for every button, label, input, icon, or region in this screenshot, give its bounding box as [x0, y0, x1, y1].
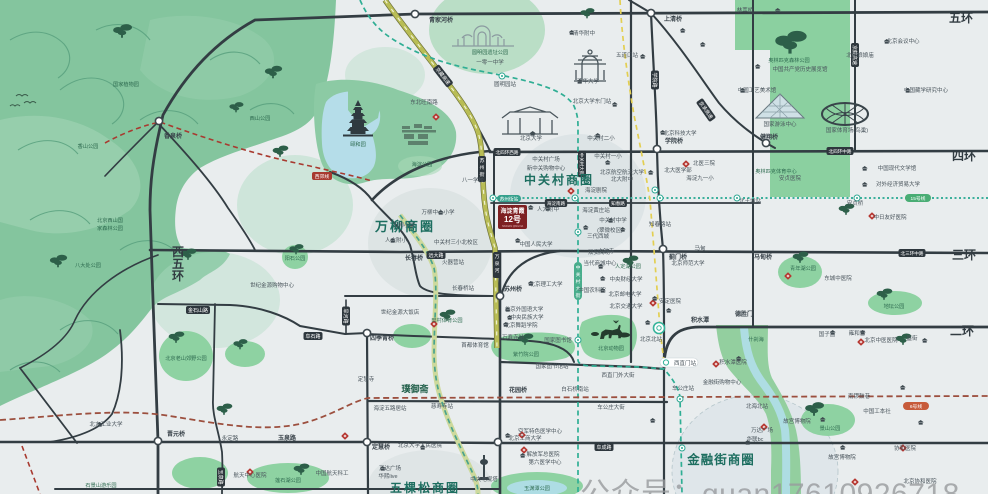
svg-text:苏州街站: 苏州街站: [500, 195, 519, 202]
svg-text:四季青桥: 四季青桥: [370, 334, 395, 342]
svg-text:中央民族大学: 中央民族大学: [510, 313, 544, 321]
svg-text:积水潭医院: 积水潭医院: [719, 358, 747, 366]
svg-text:阜石路: 阜石路: [305, 333, 320, 340]
svg-text:北三环中路: 北三环中路: [901, 250, 924, 257]
svg-text:西直门外大街: 西直门外大街: [601, 371, 635, 379]
svg-text:远大路: 远大路: [428, 252, 443, 259]
svg-text:八大处公园: 八大处公园: [75, 261, 101, 269]
svg-text:北方工业大学: 北方工业大学: [89, 420, 123, 428]
svg-text:北四环西路: 北四环西路: [496, 149, 519, 156]
svg-text:万寿寺站: 万寿寺站: [502, 333, 525, 341]
svg-text:紫竹院公园: 紫竹院公园: [513, 350, 539, 358]
svg-text:长春桥站: 长春桥站: [452, 284, 475, 292]
svg-text:泉: 泉: [495, 260, 500, 267]
svg-text:清华附中: 清华附中: [573, 29, 595, 37]
svg-text:三代西城: 三代西城: [587, 232, 610, 240]
svg-text:阜成路: 阜成路: [596, 444, 611, 451]
svg-text:北京交通大学: 北京交通大学: [609, 302, 643, 310]
svg-text:海淀九一小: 海淀九一小: [686, 174, 714, 182]
svg-text:什刹海: 什刹海: [748, 335, 764, 343]
svg-text:五环: 五环: [949, 11, 973, 25]
svg-text:北京理工大学: 北京理工大学: [529, 280, 563, 288]
svg-text:学院路: 学院路: [651, 72, 658, 87]
svg-text:北京工商大学: 北京工商大学: [508, 434, 542, 442]
svg-text:金石山路: 金石山路: [188, 307, 208, 314]
svg-text:颐和园: 颐和园: [350, 140, 366, 148]
svg-text:中关村一小: 中关村一小: [594, 152, 622, 160]
svg-text:协和医院: 协和医院: [894, 444, 917, 452]
svg-text:北京北站: 北京北站: [640, 335, 663, 343]
svg-text:三环: 三环: [952, 248, 976, 262]
svg-text:金融街购物中心: 金融街购物中心: [703, 378, 742, 386]
svg-text:海淀黄庄站: 海淀黄庄站: [582, 206, 610, 214]
svg-text:金融街商圈: 金融街商圈: [686, 452, 755, 467]
svg-text:河: 河: [495, 267, 500, 274]
svg-text:蓟门桥: 蓟门桥: [668, 253, 688, 261]
svg-text:林萃桥: 林萃桥: [737, 6, 754, 14]
svg-text:村: 村: [576, 278, 581, 285]
svg-text:万达广场: 万达广场: [751, 426, 774, 434]
svg-text:大钟寺: 大钟寺: [598, 247, 615, 255]
svg-text:北大医学部: 北大医学部: [664, 166, 692, 174]
svg-text:国家游泳中心: 国家游泳中心: [763, 120, 797, 128]
svg-text:故宫博物院: 故宫博物院: [783, 417, 811, 425]
svg-text:北京大学东门站: 北京大学东门站: [573, 97, 612, 105]
svg-text:清华大学: 清华大学: [577, 77, 600, 85]
svg-text:莲石湖公园: 莲石湖公园: [275, 476, 301, 484]
svg-text:南锣鼓巷: 南锣鼓巷: [848, 392, 871, 400]
svg-text:新中关购物中心: 新中关购物中心: [527, 164, 566, 172]
svg-text:上清桥: 上清桥: [664, 15, 683, 23]
svg-text:HAIDIAN QINGXIA: HAIDIAN QINGXIA: [502, 225, 524, 228]
svg-text:石景山游乐园: 石景山游乐园: [85, 481, 116, 489]
svg-text:马甸桥: 马甸桥: [754, 253, 773, 261]
svg-text:6号线: 6号线: [910, 403, 922, 410]
svg-text:白石桥南站: 白石桥南站: [561, 385, 589, 393]
svg-text:东城中医院: 东城中医院: [824, 274, 852, 282]
svg-text:北京外国语大学: 北京外国语大学: [505, 305, 544, 313]
svg-text:玉泉路: 玉泉路: [217, 469, 224, 484]
svg-text:璞御斋: 璞御斋: [401, 383, 429, 394]
svg-text:马甸: 马甸: [694, 244, 706, 252]
svg-text:对外经济贸易大学: 对外经济贸易大学: [876, 180, 921, 188]
svg-text:海淀公园: 海淀公园: [412, 160, 433, 168]
svg-text:安贞医院: 安贞医院: [779, 174, 802, 182]
svg-text:国家图书馆: 国家图书馆: [544, 336, 572, 344]
svg-text:中央电视塔: 中央电视塔: [470, 475, 498, 483]
svg-text:首都体育馆: 首都体育馆: [461, 341, 489, 349]
svg-text:北京大学: 北京大学: [520, 134, 543, 142]
svg-text:当代商城中心: 当代商城中心: [583, 259, 617, 267]
svg-text:花园桥: 花园桥: [509, 386, 528, 394]
svg-text:北海北站: 北海北站: [746, 402, 769, 410]
svg-text:公众号：guan17610926718: 公众号：guan17610926718: [580, 478, 960, 494]
svg-text:定慧寺: 定慧寺: [358, 375, 375, 383]
svg-text:积水潭: 积水潭: [691, 316, 709, 324]
svg-text:家森林公园: 家森林公园: [97, 224, 123, 232]
svg-text:德胜门: 德胜门: [734, 310, 753, 318]
svg-text:火器营站: 火器营站: [442, 258, 465, 266]
svg-text:青年湖公园: 青年湖公园: [790, 264, 816, 272]
svg-text:二环: 二环: [950, 324, 974, 338]
svg-text:奥林匹克体育中心: 奥林匹克体育中心: [755, 167, 797, 175]
svg-text:人大附中: 人大附中: [537, 205, 559, 213]
svg-text:北京老山郊野公园: 北京老山郊野公园: [165, 354, 207, 362]
svg-text:中国藏学研究中心: 中国藏学研究中心: [904, 86, 949, 94]
svg-text:中央财经大学: 中央财经大学: [609, 275, 643, 283]
svg-text:海淀五路居站: 海淀五路居站: [373, 404, 407, 412]
svg-text:五棵松商圈: 五棵松商圈: [390, 480, 460, 494]
svg-text:中关村三小北校区: 中关村三小北校区: [434, 238, 479, 246]
svg-text:华熙live: 华熙live: [378, 472, 397, 480]
svg-text:定慧桥: 定慧桥: [371, 443, 391, 451]
svg-text:中国工艺美术馆: 中国工艺美术馆: [738, 86, 777, 94]
svg-text:知春路: 知春路: [611, 200, 625, 207]
svg-text:北京科技大学: 北京科技大学: [663, 129, 697, 137]
svg-text:国家植物园: 国家植物园: [113, 80, 139, 88]
svg-text:簋街: 簋街: [906, 334, 918, 342]
svg-text:万达广场: 万达广场: [379, 464, 402, 472]
svg-text:阳石公园: 阳石公园: [285, 254, 306, 262]
svg-text:安贞桥: 安贞桥: [847, 199, 864, 207]
svg-text:北京动物园: 北京动物园: [598, 344, 624, 352]
svg-text:华联bc: 华联bc: [747, 435, 764, 443]
svg-text:国子监: 国子监: [819, 330, 836, 338]
svg-text:长春桥: 长春桥: [405, 254, 424, 262]
svg-text:中国工本社: 中国工本社: [863, 407, 891, 415]
svg-text:慈寿寺站: 慈寿寺站: [431, 402, 454, 410]
svg-text:15号线: 15号线: [911, 195, 926, 202]
svg-text:万柳小学: 万柳小学: [393, 221, 416, 229]
svg-text:空军特色医学中心: 空军特色医学中心: [518, 427, 563, 435]
svg-text:知春路站: 知春路站: [649, 220, 672, 228]
svg-text:安定医院: 安定医院: [659, 297, 682, 305]
svg-text:北京航空航天大学: 北京航空航天大学: [600, 168, 645, 176]
svg-text:圆明园站: 圆明园站: [494, 80, 517, 88]
svg-text:北土城站: 北土城站: [739, 197, 762, 205]
svg-text:海淀青霞: 海淀青霞: [500, 207, 525, 215]
svg-text:人大附小: 人大附小: [385, 236, 408, 244]
svg-text:东北旺南路: 东北旺南路: [410, 98, 438, 106]
svg-text:玉渊潭公园: 玉渊潭公园: [524, 484, 550, 492]
svg-text:玉泉路: 玉泉路: [278, 434, 297, 442]
svg-text:雍和宫: 雍和宫: [849, 329, 866, 337]
svg-text:故宫博物院: 故宫博物院: [828, 453, 856, 461]
svg-text:环: 环: [172, 269, 184, 283]
svg-text:中国现代文学馆: 中国现代文学馆: [878, 164, 917, 172]
svg-text:中国人民大学: 中国人民大学: [519, 240, 553, 248]
svg-text:第六医学中心: 第六医学中心: [528, 458, 562, 466]
svg-text:世纪金源大饭店: 世纪金源大饭店: [381, 308, 420, 316]
svg-text:西山公园: 西山公园: [250, 114, 271, 122]
svg-text:学院桥: 学院桥: [665, 137, 684, 145]
svg-text:晋元桥: 晋元桥: [167, 430, 186, 438]
svg-text:北京会议中心: 北京会议中心: [886, 37, 920, 45]
svg-text:北京舞蹈学院: 北京舞蹈学院: [504, 321, 538, 329]
svg-text:田村体育公园: 田村体育公园: [431, 316, 462, 324]
svg-text:苏州桥: 苏州桥: [504, 285, 523, 293]
svg-text:中关村广场: 中关村广场: [532, 155, 560, 163]
svg-text:州: 州: [480, 165, 485, 171]
svg-text:车公庄站: 车公庄站: [672, 384, 695, 392]
svg-text:关: 关: [576, 271, 581, 278]
svg-text:圆明园遗址公园: 圆明园遗址公园: [472, 48, 508, 56]
svg-text:香山公园: 香山公园: [78, 142, 99, 150]
svg-text:中国航天科工: 中国航天科工: [315, 469, 349, 477]
svg-text:万柳中心小学: 万柳中心小学: [421, 208, 455, 216]
svg-text:海淀南路: 海淀南路: [547, 200, 566, 207]
svg-text:八一学校: 八一学校: [462, 176, 485, 184]
svg-text:中关村商圈: 中关村商圈: [524, 172, 594, 187]
svg-text:奥林匹克森林公园: 奥林匹克森林公园: [768, 56, 810, 64]
svg-text:永定路: 永定路: [222, 434, 239, 442]
svg-text:北京邮电大学: 北京邮电大学: [608, 290, 642, 298]
svg-text:北四环中路: 北四环中路: [829, 148, 852, 155]
svg-text:北大附中: 北大附中: [611, 175, 633, 183]
svg-text:旱河路: 旱河路: [342, 308, 349, 323]
svg-text:解放军总医院: 解放军总医院: [526, 450, 560, 458]
svg-text:四环: 四环: [952, 149, 976, 163]
svg-text:北顶娘娘庙: 北顶娘娘庙: [846, 51, 874, 59]
svg-text:海淀剧院: 海淀剧院: [585, 186, 608, 194]
svg-text:五道口站: 五道口站: [616, 51, 639, 59]
svg-text:北京师范大学: 北京师范大学: [671, 259, 705, 267]
svg-text:航天中心医院: 航天中心医院: [233, 471, 267, 479]
svg-text:街: 街: [480, 171, 485, 178]
svg-text:北京中医医院: 北京中医医院: [864, 336, 898, 344]
svg-text:万: 万: [495, 254, 500, 260]
svg-text:北京西山国: 北京西山国: [97, 216, 123, 224]
svg-text:(翠微校区): (翠微校区): [597, 226, 623, 234]
svg-text:西直门站: 西直门站: [674, 359, 697, 367]
svg-text:苏: 苏: [480, 157, 485, 164]
svg-text:世纪金源购物中心: 世纪金源购物中心: [250, 281, 295, 289]
svg-text:青家河桥: 青家河桥: [429, 16, 454, 24]
svg-text:中: 中: [576, 264, 581, 271]
svg-text:国家图书馆站: 国家图书馆站: [535, 362, 569, 370]
svg-text:健翔桥: 健翔桥: [760, 133, 779, 141]
svg-text:香泉桥: 香泉桥: [163, 132, 183, 140]
svg-text:北医三院: 北医三院: [693, 159, 716, 167]
svg-text:车公庄大街: 车公庄大街: [597, 403, 625, 411]
svg-text:中国农科院: 中国农科院: [578, 286, 606, 294]
svg-text:中日友好医院: 中日友好医院: [873, 213, 907, 221]
svg-text:人定湖公园: 人定湖公园: [615, 262, 641, 270]
svg-text:西郊线: 西郊线: [315, 173, 330, 180]
svg-text:景山公园: 景山公园: [820, 424, 841, 432]
svg-text:地坛公园: 地坛公园: [884, 302, 905, 310]
svg-text:12号: 12号: [504, 215, 521, 224]
svg-text:一零一中学: 一零一中学: [476, 58, 504, 66]
svg-text:国家体育场(鸟巢): 国家体育场(鸟巢): [826, 126, 868, 134]
svg-text:中关村二小: 中关村二小: [587, 134, 615, 142]
svg-text:北京大学人民医院: 北京大学人民医院: [398, 441, 443, 449]
svg-text:中国共产党历史展览馆: 中国共产党历史展览馆: [772, 65, 828, 73]
svg-text:中关村中学: 中关村中学: [599, 216, 627, 224]
